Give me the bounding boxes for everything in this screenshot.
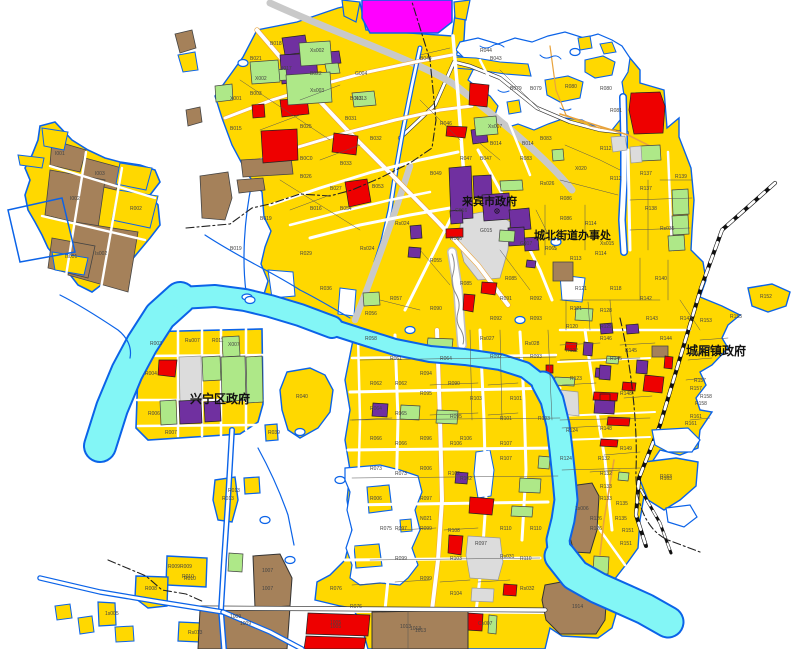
svg-text:R066: R066 — [370, 436, 382, 442]
svg-text:R148: R148 — [620, 391, 632, 397]
svg-text:R092: R092 — [490, 354, 502, 360]
svg-text:R132: R132 — [598, 456, 610, 462]
svg-text:R036: R036 — [320, 286, 332, 292]
svg-text:B0C0: B0C0 — [300, 156, 313, 162]
svg-text:R112: R112 — [610, 176, 622, 182]
svg-text:R149: R149 — [620, 446, 632, 452]
svg-text:1013: 1013 — [415, 628, 426, 634]
svg-text:R002: R002 — [130, 206, 142, 212]
svg-text:R143: R143 — [680, 316, 692, 322]
svg-text:R006: R006 — [420, 466, 432, 472]
svg-text:B025: B025 — [300, 124, 312, 130]
svg-text:R133: R133 — [600, 496, 612, 502]
svg-text:Xs015: Xs015 — [600, 241, 614, 247]
svg-text:X002: X002 — [255, 76, 267, 82]
svg-text:Xs003: Xs003 — [310, 88, 324, 94]
svg-text:B027: B027 — [330, 186, 342, 192]
svg-text:R066: R066 — [395, 441, 407, 447]
svg-text:R108: R108 — [448, 528, 460, 534]
svg-text:R133: R133 — [600, 484, 612, 490]
svg-text:1914: 1914 — [572, 604, 583, 610]
svg-text:R095: R095 — [420, 391, 432, 397]
svg-text:R076: R076 — [330, 586, 342, 592]
svg-text:R104: R104 — [450, 591, 462, 597]
svg-text:R107: R107 — [500, 441, 512, 447]
svg-text:R140: R140 — [655, 276, 667, 282]
svg-text:R008: R008 — [145, 586, 157, 592]
svg-text:R083: R083 — [520, 156, 532, 162]
svg-text:R065: R065 — [545, 246, 557, 252]
svg-text:R107: R107 — [500, 456, 512, 462]
svg-text:R137: R137 — [640, 171, 652, 177]
svg-text:R161: R161 — [685, 421, 697, 427]
svg-text:Rs031: Rs031 — [500, 554, 515, 560]
svg-text:R097: R097 — [395, 526, 407, 532]
svg-text:B014: B014 — [522, 141, 534, 147]
svg-text:R093: R093 — [530, 316, 542, 322]
svg-text:R102: R102 — [460, 476, 472, 482]
svg-text:B033: B033 — [340, 161, 352, 167]
svg-text:R163: R163 — [660, 474, 672, 480]
svg-text:G016: G016 — [455, 208, 467, 214]
svg-text:R046: R046 — [440, 121, 452, 127]
svg-text:Is002: Is002 — [95, 251, 107, 257]
svg-text:R126: R126 — [590, 526, 602, 532]
svg-text:1s006: 1s006 — [575, 506, 589, 512]
svg-text:R135: R135 — [616, 501, 628, 507]
svg-text:R129: R129 — [600, 324, 612, 330]
svg-text:X013: X013 — [355, 96, 367, 102]
svg-text:R153: R153 — [730, 314, 742, 320]
svg-text:R093: R093 — [530, 354, 542, 360]
svg-text:B083: B083 — [540, 136, 552, 142]
svg-text:R118: R118 — [610, 286, 622, 292]
svg-text:R097: R097 — [475, 541, 487, 547]
svg-text:R092: R092 — [490, 316, 502, 322]
svg-text:R132: R132 — [600, 471, 612, 477]
svg-text:R066: R066 — [450, 236, 462, 242]
svg-text:R065: R065 — [395, 411, 407, 417]
svg-text:R101: R101 — [510, 396, 522, 402]
svg-text:R013: R013 — [228, 488, 240, 494]
svg-text:R091: R091 — [500, 296, 512, 302]
svg-text:R161: R161 — [690, 414, 702, 420]
svg-text:R075: R075 — [380, 526, 392, 532]
svg-text:R124: R124 — [560, 456, 572, 462]
svg-text:R099: R099 — [420, 576, 432, 582]
svg-text:R029: R029 — [300, 251, 312, 257]
svg-text:Rs032: Rs032 — [520, 586, 535, 592]
svg-text:R073: R073 — [370, 466, 382, 472]
svg-text:R142: R142 — [640, 296, 652, 302]
svg-text:R155: R155 — [690, 351, 702, 357]
svg-text:R106: R106 — [450, 441, 462, 447]
svg-text:R110: R110 — [530, 526, 542, 532]
svg-text:R157: R157 — [694, 378, 706, 384]
svg-text:I001: I001 — [55, 151, 65, 157]
svg-text:R139: R139 — [675, 174, 687, 180]
svg-text:B017: B017 — [280, 66, 292, 72]
svg-text:1009: 1009 — [240, 621, 251, 627]
svg-text:R006: R006 — [148, 411, 160, 417]
svg-text:G015: G015 — [480, 228, 492, 234]
svg-text:R101: R101 — [500, 416, 512, 422]
svg-text:R080: R080 — [565, 84, 577, 90]
svg-text:R114: R114 — [595, 251, 607, 257]
svg-text:R121: R121 — [575, 286, 587, 292]
svg-text:R013: R013 — [222, 496, 234, 502]
svg-text:R040: R040 — [296, 394, 308, 400]
svg-text:B003: B003 — [250, 91, 262, 97]
svg-text:R103: R103 — [450, 556, 462, 562]
svg-text:R110: R110 — [520, 556, 532, 562]
svg-text:X007: X007 — [228, 342, 240, 348]
svg-text:B079: B079 — [510, 86, 522, 92]
svg-text:R151: R151 — [620, 541, 632, 547]
svg-text:R003: R003 — [150, 341, 162, 347]
svg-text:R080: R080 — [600, 86, 612, 92]
svg-text:B043: B043 — [490, 56, 502, 62]
svg-text:R124: R124 — [566, 428, 578, 434]
svg-text:B019: B019 — [230, 246, 242, 252]
svg-text:R148: R148 — [600, 426, 612, 432]
svg-text:Rs028: Rs028 — [525, 341, 540, 347]
svg-text:R145: R145 — [625, 348, 637, 354]
svg-text:R113: R113 — [570, 256, 582, 262]
svg-text:R039: R039 — [268, 430, 280, 436]
svg-text:Rs026: Rs026 — [540, 181, 555, 187]
svg-text:Cs007: Cs007 — [478, 621, 493, 627]
svg-text:R126: R126 — [590, 516, 602, 522]
svg-text:R055: R055 — [430, 258, 442, 264]
svg-text:R057: R057 — [390, 296, 402, 302]
svg-text:B032: B032 — [370, 136, 382, 142]
svg-text:B014: B014 — [490, 141, 502, 147]
svg-text:R146: R146 — [600, 336, 612, 342]
svg-text:兴宁区政府: 兴宁区政府 — [190, 391, 250, 406]
svg-text:Rs035: Rs035 — [660, 226, 675, 232]
svg-text:R123: R123 — [570, 376, 582, 382]
svg-text:R120: R120 — [566, 324, 578, 330]
svg-text:R090: R090 — [430, 306, 442, 312]
svg-text:B026: B026 — [300, 174, 312, 180]
svg-text:R103: R103 — [538, 416, 550, 422]
svg-text:1s005: 1s005 — [105, 611, 119, 617]
svg-text:B018: B018 — [270, 41, 282, 47]
svg-text:Xs007: Xs007 — [488, 124, 502, 130]
svg-text:R121: R121 — [570, 306, 582, 312]
svg-text:R086: R086 — [560, 216, 572, 222]
svg-text:R064: R064 — [440, 356, 452, 362]
svg-text:R102: R102 — [448, 471, 460, 477]
svg-text:R144: R144 — [660, 336, 672, 342]
svg-text:R152: R152 — [760, 294, 772, 300]
svg-text:B079: B079 — [530, 86, 542, 92]
svg-text:X020: X020 — [575, 166, 587, 172]
svg-text:R092: R092 — [530, 296, 542, 302]
svg-text:R103: R103 — [470, 396, 482, 402]
svg-text:Is001: Is001 — [65, 254, 77, 260]
svg-text:R044: R044 — [480, 48, 492, 54]
svg-text:B015: B015 — [230, 126, 242, 132]
svg-text:B044: B044 — [420, 56, 432, 62]
svg-text:R047: R047 — [460, 156, 472, 162]
svg-text:R085: R085 — [460, 281, 472, 287]
svg-text:G017: G017 — [520, 241, 532, 247]
svg-text:R086: R086 — [560, 196, 572, 202]
svg-text:I002: I002 — [70, 196, 80, 202]
svg-text:R056: R056 — [365, 311, 377, 317]
svg-text:1013: 1013 — [400, 624, 411, 630]
svg-text:R137: R137 — [640, 186, 652, 192]
svg-text:B053: B053 — [372, 184, 384, 190]
svg-text:R151: R151 — [622, 528, 634, 534]
svg-text:R076: R076 — [350, 604, 362, 610]
svg-text:R097: R097 — [420, 496, 432, 502]
svg-text:R062: R062 — [395, 381, 407, 387]
svg-text:R110: R110 — [500, 526, 512, 532]
svg-text:1007: 1007 — [262, 568, 273, 574]
svg-text:R085: R085 — [505, 276, 517, 282]
svg-text:1007: 1007 — [262, 586, 273, 592]
svg-text:R158: R158 — [700, 394, 712, 400]
svg-text:B019: B019 — [260, 216, 272, 222]
svg-text:I003: I003 — [95, 171, 105, 177]
svg-text:R009: R009 — [180, 564, 192, 570]
svg-text:B054: B054 — [340, 206, 352, 212]
svg-text:来宾市政府: 来宾市政府 — [461, 194, 517, 208]
svg-text:R006: R006 — [370, 496, 382, 502]
svg-text:B022: B022 — [310, 71, 322, 77]
svg-text:R062: R062 — [370, 381, 382, 387]
svg-text:R007: R007 — [165, 430, 177, 436]
svg-text:R112: R112 — [600, 146, 612, 152]
svg-text:Rs024: Rs024 — [395, 221, 410, 227]
svg-text:R099: R099 — [395, 556, 407, 562]
svg-text:R096: R096 — [420, 436, 432, 442]
svg-text:R145: R145 — [610, 356, 622, 362]
svg-text:X001: X001 — [230, 96, 242, 102]
svg-text:R064: R064 — [370, 406, 382, 412]
svg-text:R061: R061 — [390, 356, 402, 362]
svg-text:1009: 1009 — [230, 614, 241, 620]
svg-text:R099: R099 — [420, 526, 432, 532]
svg-text:R143: R143 — [646, 316, 658, 322]
svg-text:R138: R138 — [645, 206, 657, 212]
svg-text:R157: R157 — [690, 386, 702, 392]
svg-text:R058: R058 — [365, 336, 377, 342]
svg-text:Ru007: Ru007 — [185, 338, 200, 344]
svg-text:G004: G004 — [355, 71, 367, 77]
svg-text:Rs024: Rs024 — [360, 246, 375, 252]
svg-text:R114: R114 — [585, 221, 597, 227]
svg-text:R158: R158 — [695, 401, 707, 407]
svg-text:R081: R081 — [610, 108, 622, 114]
svg-text:Rs013: Rs013 — [188, 630, 203, 636]
svg-text:城北街道办事处: 城北街道办事处 — [534, 228, 612, 242]
svg-text:R073: R073 — [395, 471, 407, 477]
svg-text:R153: R153 — [700, 318, 712, 324]
svg-text:R095: R095 — [450, 414, 462, 420]
svg-text:R090: R090 — [448, 381, 460, 387]
svg-text:Rs027: Rs027 — [480, 336, 495, 342]
svg-text:B031: B031 — [345, 116, 357, 122]
svg-text:1005: 1005 — [330, 624, 341, 630]
svg-text:R011: R011 — [212, 338, 224, 344]
svg-text:B016: B016 — [310, 206, 322, 212]
svg-text:R122: R122 — [566, 348, 578, 354]
svg-text:B049: B049 — [430, 171, 442, 177]
svg-text:R094: R094 — [420, 371, 432, 377]
svg-text:R135: R135 — [615, 516, 627, 522]
svg-text:B021: B021 — [250, 56, 262, 62]
svg-text:N021: N021 — [420, 516, 432, 522]
svg-text:R009: R009 — [168, 564, 180, 570]
svg-text:Xs002: Xs002 — [310, 48, 324, 54]
svg-text:R010: R010 — [184, 576, 196, 582]
svg-text:R004: R004 — [145, 371, 157, 377]
svg-text:R128: R128 — [600, 308, 612, 314]
svg-text:B047: B047 — [480, 156, 492, 162]
